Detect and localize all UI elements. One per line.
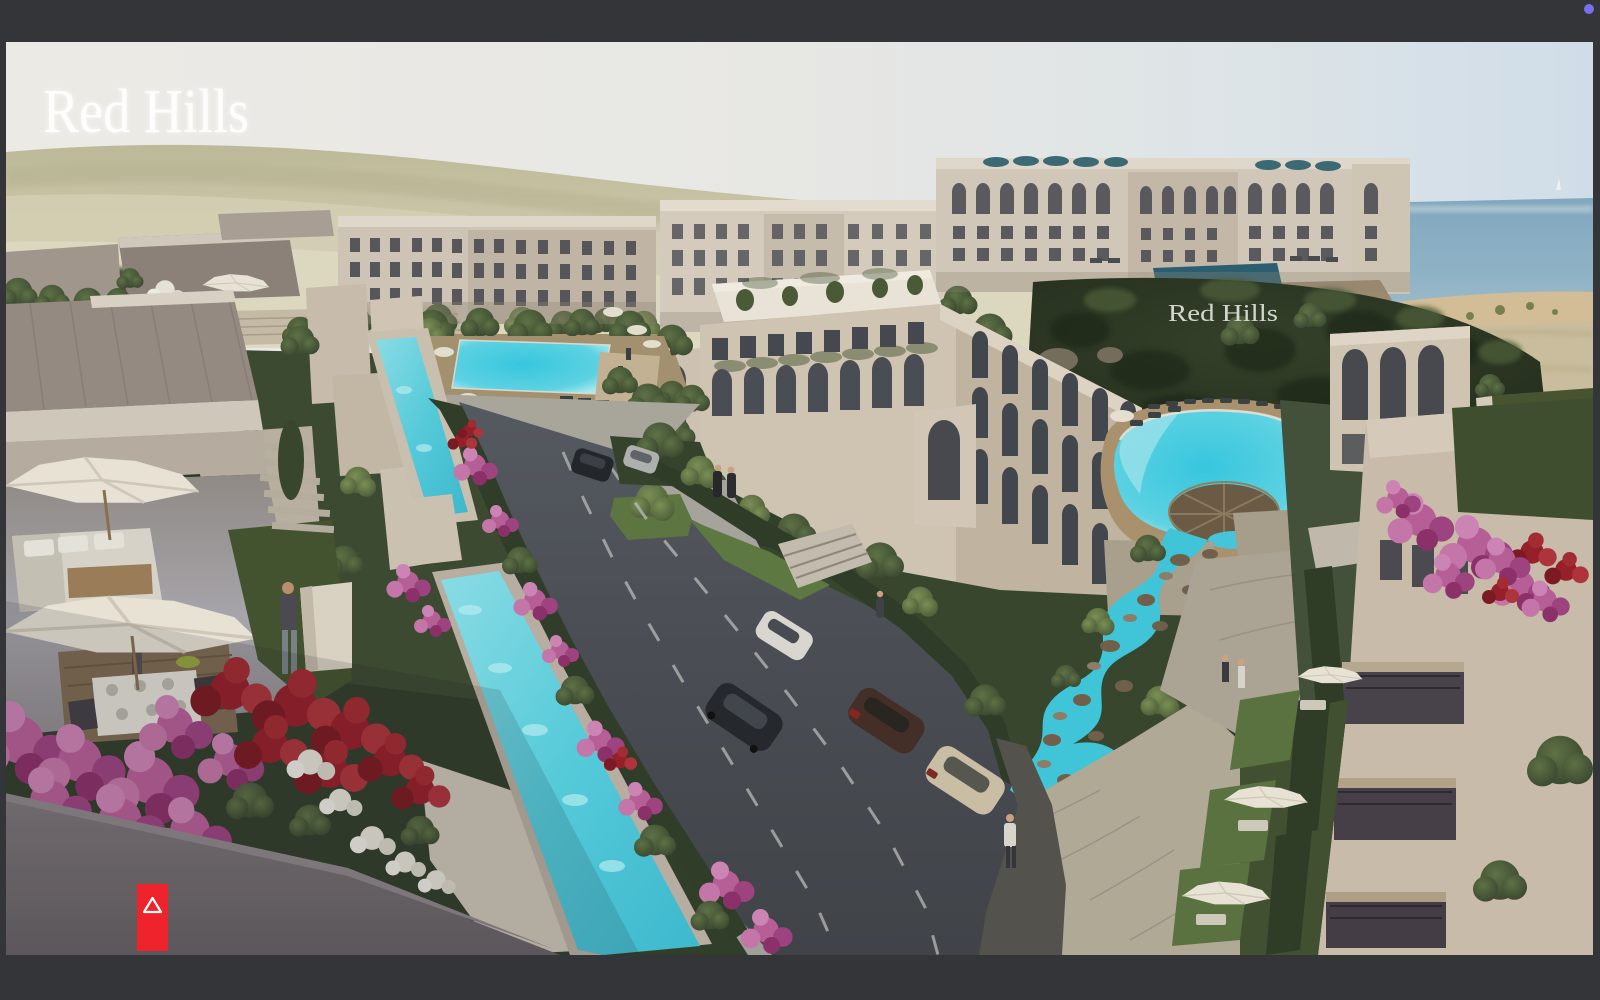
svg-text:Red Hills: Red Hills — [43, 78, 249, 146]
svg-text:Red Hills: Red Hills — [1168, 301, 1278, 327]
